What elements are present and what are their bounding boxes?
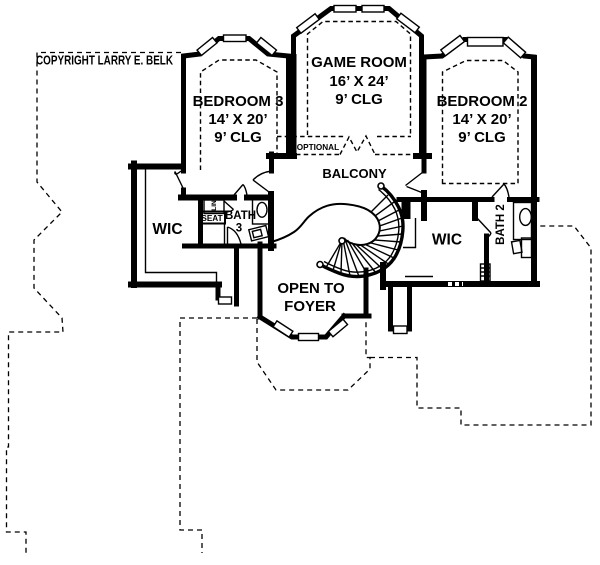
svg-text:14’ X 20’: 14’ X 20’ [452,111,511,128]
svg-text:COPYRIGHT LARRY E. BELK: COPYRIGHT LARRY E. BELK [36,54,173,68]
svg-text:FOYER: FOYER [284,298,336,315]
svg-text:OPEN TO: OPEN TO [277,280,345,297]
svg-text:BEDROOM 3: BEDROOM 3 [193,93,284,110]
svg-text:SEAT: SEAT [201,214,222,223]
svg-text:LIN: LIN [211,200,218,211]
svg-text:BEDROOM 2: BEDROOM 2 [437,93,528,110]
svg-text:9’ CLG: 9’ CLG [335,91,383,108]
svg-text:BATH: BATH [225,210,256,222]
svg-text:OPTIONAL: OPTIONAL [297,143,339,152]
svg-text:14’ X 20’: 14’ X 20’ [208,111,267,128]
svg-text:9’ CLG: 9’ CLG [214,129,262,146]
svg-text:16’ X 24’: 16’ X 24’ [329,73,388,90]
svg-text:WIC: WIC [152,221,182,238]
svg-text:9’ CLG: 9’ CLG [458,129,506,146]
svg-text:BALCONY: BALCONY [322,166,387,181]
svg-text:3: 3 [236,223,242,235]
svg-text:GAME ROOM: GAME ROOM [311,54,407,71]
svg-text:BATH 2: BATH 2 [495,204,507,245]
svg-text:WIC: WIC [432,232,462,249]
